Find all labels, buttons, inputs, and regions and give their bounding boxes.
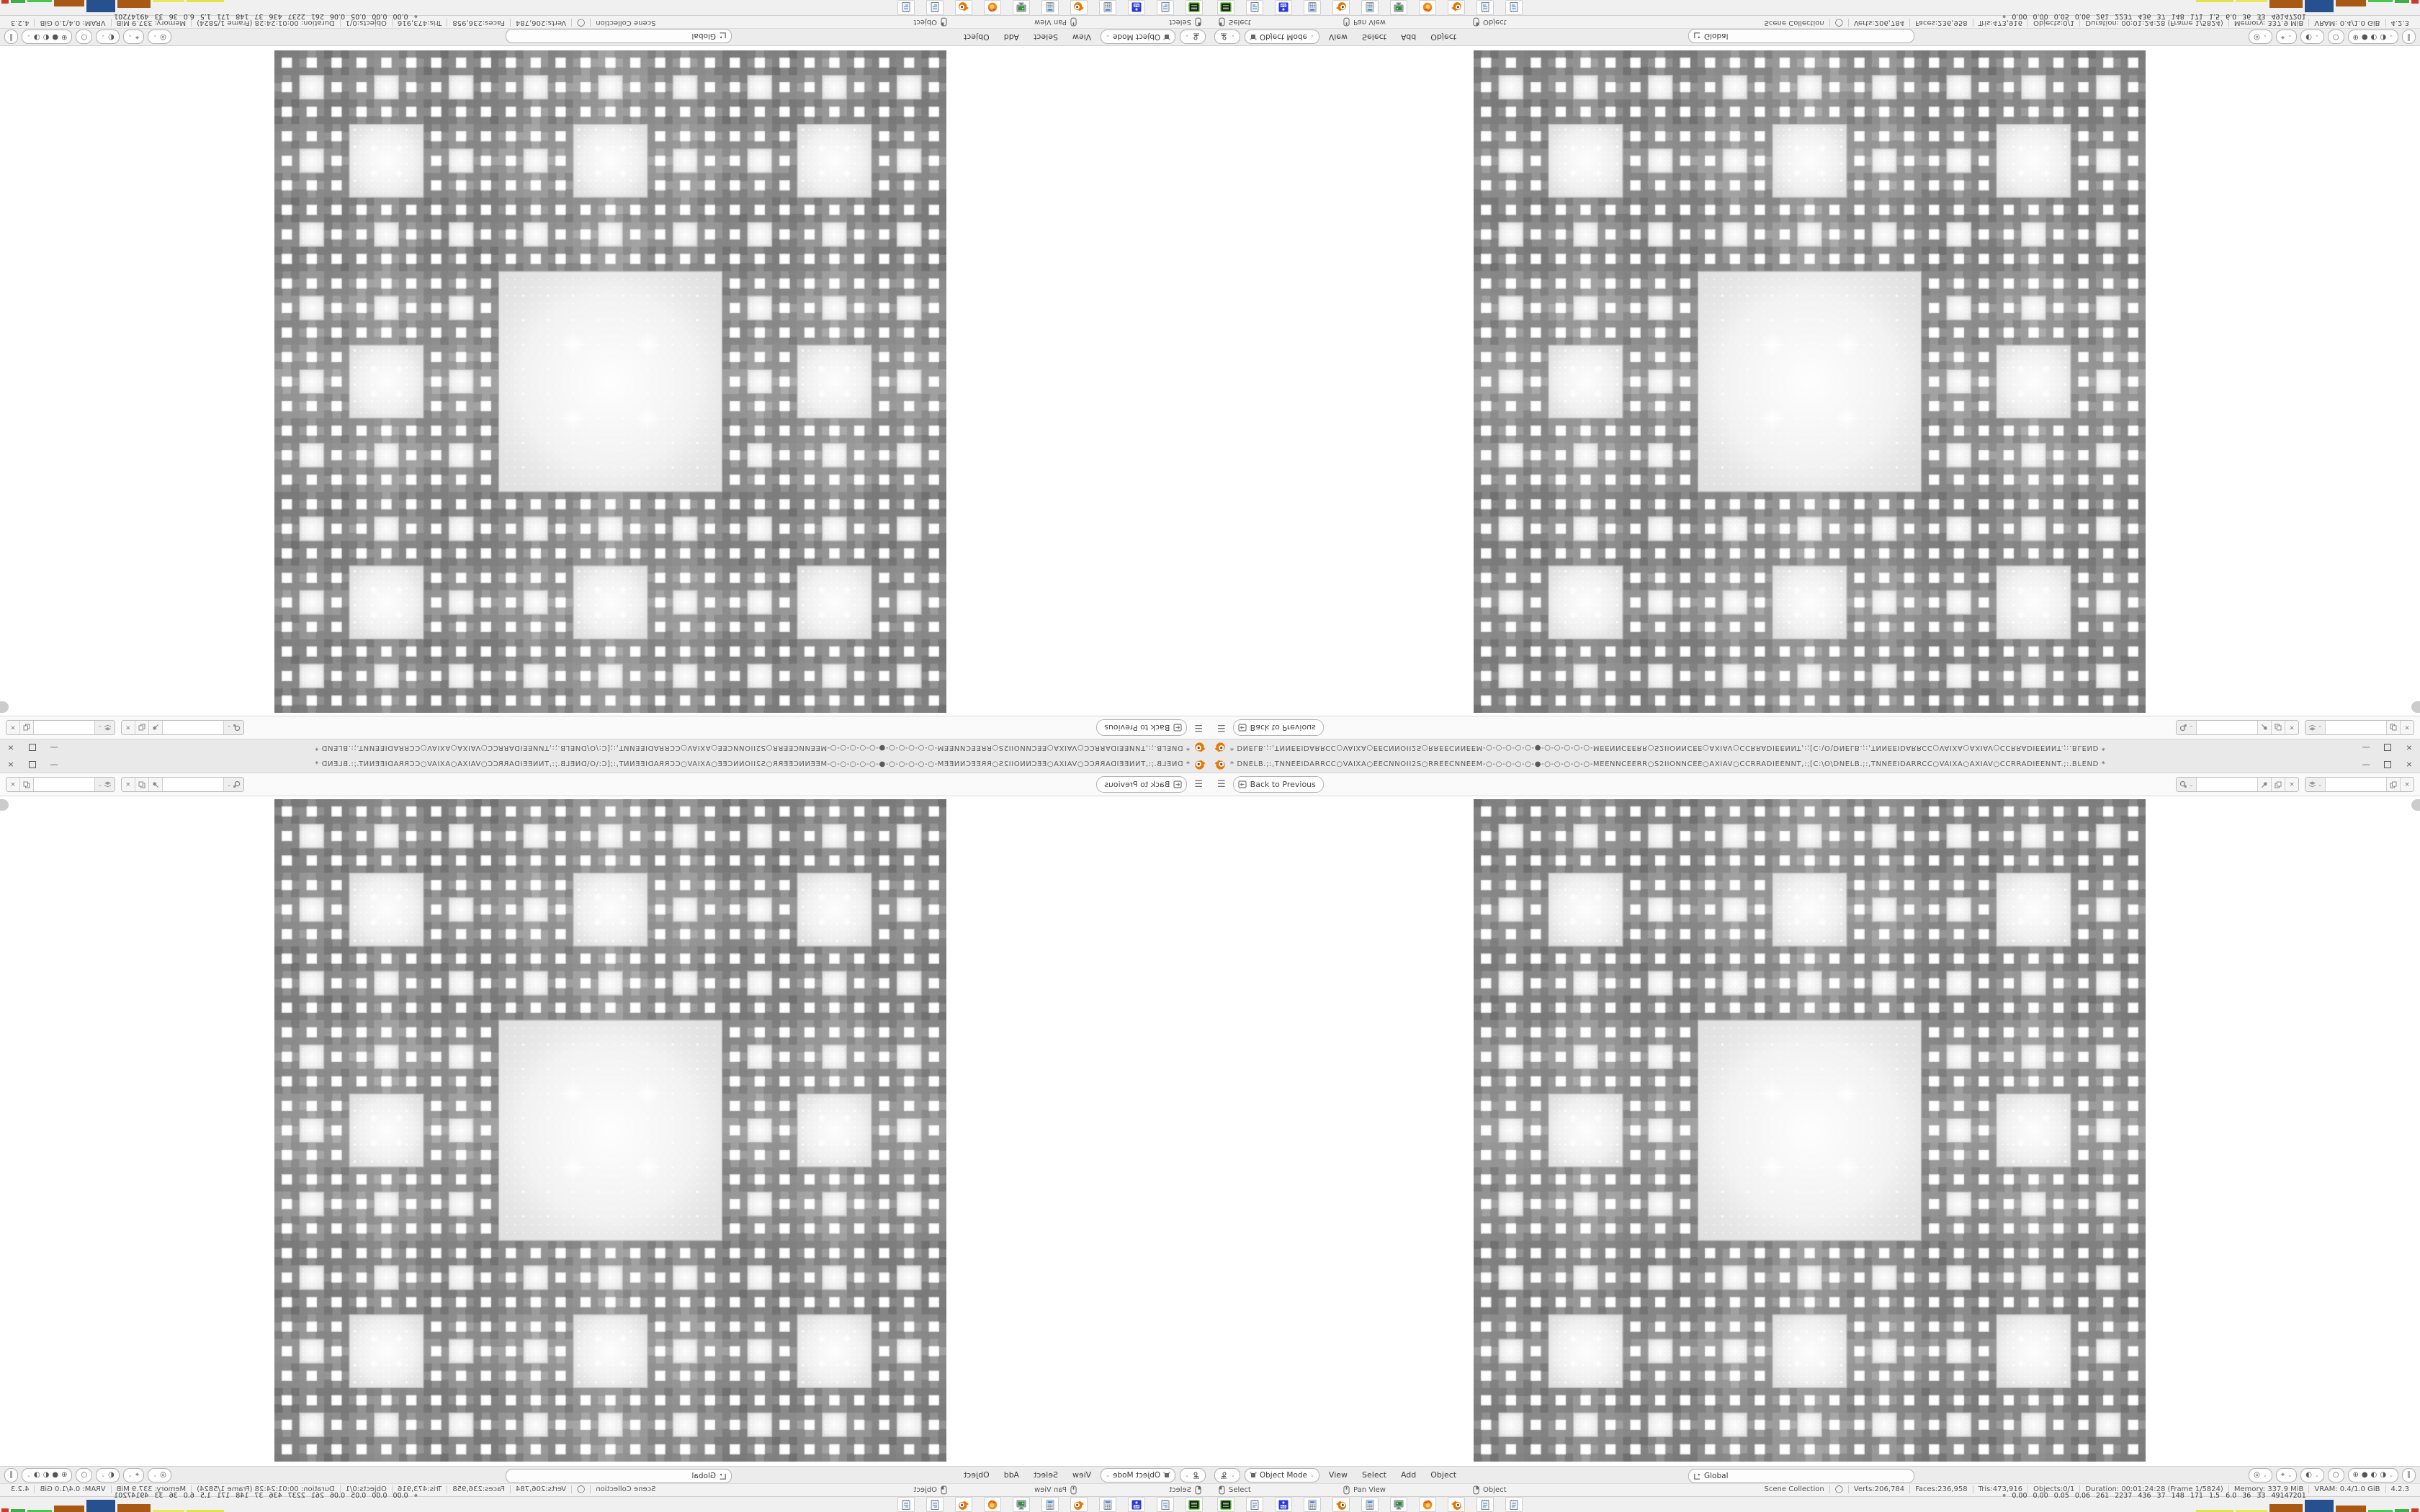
mode-dropdown[interactable]: Object Mode ⌄ <box>1245 30 1319 45</box>
chevron-down-icon: ⌄ <box>2263 1472 2267 1478</box>
menu-select[interactable]: Select <box>1028 1470 1063 1480</box>
transform-orientation-dropdown[interactable]: Global <box>506 1469 732 1483</box>
window-titlebar: * DNELB.;:,TNNEEIDARRCC○VAIXA○EECNNOII2S… <box>0 756 1210 773</box>
editor-type-selector[interactable]: ⌄ <box>1214 1468 1240 1482</box>
stat-faces: Faces:236,958 <box>1909 1485 1973 1493</box>
circle-icon: ○ <box>2333 33 2339 41</box>
maximize-button[interactable] <box>2377 756 2398 773</box>
profiler-bar <box>2368 0 2393 2</box>
right-mouse-button-icon <box>941 1485 947 1495</box>
taskbar-icon-firefox[interactable] <box>984 0 1001 15</box>
wireframe-shading-icon[interactable]: ⊕ <box>2353 1471 2359 1479</box>
maximize-icon <box>2384 761 2391 768</box>
header-end-handle[interactable]: ∥ <box>4 30 18 45</box>
blender-logo-icon <box>1194 742 1206 754</box>
material-shading-icon[interactable]: ◐ <box>2371 1471 2378 1479</box>
close-button[interactable]: × <box>0 756 22 773</box>
delete-scene-button[interactable]: × <box>122 721 135 734</box>
transform-orientation-dropdown[interactable]: Global <box>1688 1469 1914 1483</box>
taskbar-icon-blender[interactable] <box>955 1497 972 1512</box>
scene-icon-glyph <box>2179 724 2187 732</box>
new-scene-button[interactable] <box>2272 721 2285 734</box>
mode-label: Object Mode <box>1113 1471 1160 1480</box>
wireframe-shading-icon[interactable]: ⊕ <box>61 33 67 41</box>
chevron-down-icon: ⌄ <box>2287 35 2292 40</box>
scene-icon[interactable]: ⌄ <box>223 721 243 734</box>
taskbar-icon-notepad[interactable] <box>926 0 944 15</box>
window-titlebar: * DNELB.;:,TNNEEIDARRCC○VAIXA○EECNNOII2S… <box>1210 756 2420 773</box>
orientation-label: Global <box>692 32 717 40</box>
remove-view-layer-button[interactable]: × <box>2401 721 2414 734</box>
profiler-stats-text: ⌖ 0.00 0.00 0.05 0.06 261 2237 436 37 14… <box>114 12 418 20</box>
taskbar-icon-calculator[interactable] <box>1099 0 1116 15</box>
back-window-icon <box>1238 724 1247 732</box>
stat-faces: Faces:236,958 <box>447 1485 511 1493</box>
gizmo-icon: ◎ <box>2254 33 2260 41</box>
show-gizmo-toggle[interactable]: ◎ ⌄ <box>148 1468 171 1482</box>
pin-scene-button[interactable] <box>2258 721 2272 734</box>
view-layer-selector[interactable]: ⌄ × <box>2305 720 2414 735</box>
taskbar-icon-notepad[interactable] <box>1157 1497 1174 1512</box>
taskbar-icon-calculator[interactable] <box>1304 0 1321 15</box>
back-to-previous-label: Back to Previous <box>1250 723 1316 732</box>
header-end-handle[interactable]: ∥ <box>2402 1468 2416 1482</box>
stat-verts: Verts:206,784 <box>511 1485 572 1493</box>
hint-pan-view: Pan View <box>1034 17 1077 27</box>
chevron-down-icon: ⌄ <box>1310 35 1314 40</box>
gizmo-icon: ◎ <box>2254 1471 2260 1479</box>
chevron-down-icon: ⌄ <box>1106 35 1110 40</box>
profiler-stats-text: ⌖ 0.00 0.00 0.05 0.06 261 2237 436 37 14… <box>2002 12 2306 20</box>
taskbar-icon-vice-c64[interactable]: 64 <box>1128 0 1145 15</box>
scene-icon-glyph <box>233 724 241 732</box>
chevron-down-icon: ⌄ <box>1106 1472 1110 1478</box>
3d-viewport-editor-icon <box>1219 33 1228 42</box>
taskbar-icon-blender[interactable] <box>1448 0 1465 15</box>
hint-object: Object <box>1473 1485 1507 1495</box>
mode-dropdown[interactable]: Object Mode ⌄ <box>1101 1468 1175 1482</box>
header-end-handle[interactable]: ∥ <box>4 1468 18 1482</box>
show-overlays-toggle[interactable]: ⌖ ⌄ <box>2276 1468 2298 1482</box>
wireframe-shading-icon[interactable]: ⊕ <box>2353 33 2359 41</box>
profiler-bar-graph <box>2196 0 2419 13</box>
stat-faces: Faces:236,958 <box>1909 19 1973 27</box>
stat-verts: Verts:206,784 <box>511 19 572 27</box>
menu-hamburger-icon[interactable]: ☰ <box>1217 779 1226 790</box>
menu-object[interactable]: Object <box>959 1470 995 1480</box>
new-scene-button[interactable] <box>2272 778 2285 791</box>
menu-object[interactable]: Object <box>959 32 995 42</box>
new-view-layer-button[interactable] <box>2387 778 2401 791</box>
copy-icon <box>138 724 145 732</box>
pause-bars-icon: ∥ <box>9 1471 13 1479</box>
scene-selector[interactable]: ⌄ × <box>121 720 244 735</box>
menu-view[interactable]: View <box>1324 1470 1353 1480</box>
menger-sponge-render[interactable] <box>1474 50 2146 713</box>
layers-icon-glyph <box>104 724 112 732</box>
close-button[interactable]: × <box>2398 756 2420 773</box>
header-end-handle[interactable]: ∥ <box>2402 30 2416 45</box>
taskbar-icon-zip-drive[interactable] <box>1186 1497 1203 1512</box>
taskbar-icon-firefox[interactable] <box>1419 1497 1436 1512</box>
menu-object[interactable]: Object <box>1425 1470 1461 1480</box>
close-button[interactable]: × <box>0 739 22 757</box>
pause-bars-icon: ∥ <box>2407 1471 2411 1479</box>
taskbar-icon-notepad[interactable] <box>1476 1497 1494 1512</box>
overlays-icon: ⌖ <box>135 33 140 41</box>
window-title: * DNELB.;:,TNNEEIDARRCC○VAIXA○EECNNOII2S… <box>1230 744 2355 752</box>
layers-icon-glyph <box>104 780 112 788</box>
xray-toggle[interactable]: ◐ ⌄ <box>2300 30 2324 45</box>
shading-mode-group[interactable]: ⊕ ● ◐ ◑ ⌄ <box>22 30 72 45</box>
taskbar-icon-vice-c64[interactable]: 64 <box>1128 1497 1145 1512</box>
taskbar-icon-blender[interactable] <box>1332 1497 1350 1512</box>
show-overlays-toggle[interactable]: ⌖ ⌄ <box>123 30 145 45</box>
menu-hamburger-icon[interactable]: ☰ <box>1217 722 1226 733</box>
3d-viewport[interactable] <box>1210 46 2420 716</box>
back-window-icon <box>1238 780 1247 788</box>
minimize-button[interactable]: — <box>2355 756 2377 773</box>
stat-active-object-icon: ◯ <box>1829 1485 1848 1493</box>
scene-selector[interactable]: ⌄ × <box>2176 720 2299 735</box>
delete-scene-button[interactable]: × <box>122 778 135 791</box>
scene-icon[interactable]: ⌄ <box>223 778 243 791</box>
chevron-down-icon: ⌄ <box>128 1472 133 1478</box>
show-overlays-toggle[interactable]: ⌖ ⌄ <box>123 1468 145 1482</box>
taskbar-icon-calculator[interactable] <box>1099 1497 1116 1512</box>
taskbar-icon-notepad[interactable] <box>926 1497 944 1512</box>
view-layer-name-field[interactable] <box>33 778 94 791</box>
mode-dropdown[interactable]: Object Mode ⌄ <box>1101 30 1175 45</box>
profiler-bar-graph <box>2196 1499 2419 1512</box>
close-button[interactable]: × <box>2398 739 2420 757</box>
delete-scene-button[interactable]: × <box>2285 778 2298 791</box>
scene-name-field[interactable] <box>2197 778 2258 791</box>
editor-type-selector[interactable]: ⌄ <box>1180 30 1206 45</box>
menger-sponge-render[interactable] <box>1474 799 2146 1462</box>
window-title: * DNELB.;:,TNNEEIDARRCC○VAIXA○EECNNOII2S… <box>1230 760 2355 768</box>
menu-object[interactable]: Object <box>1425 32 1461 42</box>
copy-icon <box>2275 724 2282 732</box>
view-layer-selector[interactable]: ⌄ × <box>2305 777 2414 792</box>
pin-scene-button[interactable] <box>2258 778 2272 791</box>
hint-select-label: Select <box>1229 1486 1251 1494</box>
solid-shading-icon[interactable]: ● <box>52 1471 58 1479</box>
new-view-layer-button[interactable] <box>19 778 33 791</box>
rendered-shading-icon[interactable]: ◑ <box>34 33 40 41</box>
menu-select[interactable]: Select <box>1357 1470 1391 1480</box>
blender-topbar: ☰ Back to Previous ⌄ <box>0 773 1210 796</box>
profiler-bar-graph <box>1 1499 224 1512</box>
show-gizmo-toggle[interactable]: ◎ ⌄ <box>2249 1468 2272 1482</box>
editor-type-selector[interactable]: ⌄ <box>1180 1468 1206 1482</box>
back-to-previous-button[interactable]: Back to Previous <box>1233 776 1324 793</box>
taskbar-icon-notepad[interactable] <box>897 0 915 15</box>
delete-scene-button[interactable]: × <box>2285 721 2298 734</box>
taskbar-icon-notepad[interactable] <box>1157 0 1174 15</box>
menu-add[interactable]: Add <box>999 1470 1024 1480</box>
3d-viewport[interactable] <box>0 796 1210 1466</box>
scene-name-field[interactable] <box>162 778 223 791</box>
xray-toggle[interactable]: ◐ ⌄ <box>96 30 120 45</box>
menu-select[interactable]: Select <box>1028 32 1063 42</box>
viewport-header: ⌄ Object Mode ⌄ View Select Add Object <box>1210 1466 2420 1483</box>
taskbar-icon-notepad[interactable] <box>1246 0 1263 15</box>
shading-mode-group[interactable]: ⊕ ● ◐ ◑ ⌄ <box>2348 1468 2398 1482</box>
chevron-down-icon: ⌄ <box>2287 1472 2292 1478</box>
view-layer-selector[interactable]: ⌄ × <box>6 720 115 735</box>
scene-icon[interactable]: ⌄ <box>2177 721 2197 734</box>
view-layer-icon[interactable]: ⌄ <box>2305 778 2326 791</box>
scene-name-field[interactable] <box>162 721 223 734</box>
taskbar-icon-blender[interactable] <box>1448 1497 1465 1512</box>
chevron-down-icon: ⌄ <box>153 35 157 40</box>
hint-object-label: Object <box>913 18 937 26</box>
menu-add[interactable]: Add <box>1396 1470 1421 1480</box>
taskbar-icon-image-viewer[interactable] <box>1013 0 1030 15</box>
3d-viewport[interactable] <box>0 46 1210 716</box>
show-gizmo-toggle[interactable]: ◎ ⌄ <box>2249 30 2272 45</box>
global-orientation-icon <box>1693 32 1701 40</box>
chevron-down-icon: ⌄ <box>2389 1472 2393 1478</box>
maximize-button[interactable] <box>22 739 43 757</box>
menu-view[interactable]: View <box>1067 32 1096 42</box>
wireframe-shading-icon[interactable]: ⊕ <box>61 1471 67 1479</box>
shading-mode-group[interactable]: ⊕ ● ◐ ◑ ⌄ <box>2348 30 2398 45</box>
global-orientation-icon <box>719 1472 727 1480</box>
scene-icon[interactable]: ⌄ <box>2177 778 2197 791</box>
new-scene-button[interactable] <box>135 778 148 791</box>
copy-icon <box>23 724 30 732</box>
solid-shading-icon[interactable]: ● <box>2362 1471 2368 1479</box>
hint-object-label: Object <box>1483 18 1507 26</box>
left-mouse-button-icon <box>1219 17 1225 27</box>
viewport-header: ⌄ Object Mode ⌄ View Select Add Object <box>0 1466 1210 1483</box>
menu-select[interactable]: Select <box>1357 32 1391 42</box>
menger-sponge-render[interactable] <box>274 50 946 713</box>
taskbar-icon-calculator[interactable] <box>1041 1497 1059 1512</box>
profiler-bar <box>1 1508 9 1512</box>
back-to-previous-button[interactable]: Back to Previous <box>1096 719 1187 736</box>
viewport-corner-handle[interactable] <box>2411 799 2420 811</box>
taskbar-icon-vice-c64[interactable]: 64 <box>1275 1497 1292 1512</box>
taskbar-icon-notepad[interactable] <box>1505 1497 1523 1512</box>
show-overlays-toggle[interactable]: ⌖ ⌄ <box>2276 30 2298 45</box>
view-layer-name-field[interactable] <box>2326 721 2387 734</box>
shading-empty-toggle[interactable]: ○ <box>76 30 92 45</box>
taskbar-icon-firefox[interactable] <box>984 1497 1001 1512</box>
chevron-down-icon: ⌄ <box>27 1472 31 1478</box>
editor-type-selector[interactable]: ⌄ <box>1214 30 1240 45</box>
scene-name-field[interactable] <box>2197 721 2258 734</box>
remove-view-layer-button[interactable]: × <box>6 778 19 791</box>
stat-scene-collection: Scene Collection <box>591 1485 660 1493</box>
chevron-down-icon: ⌄ <box>2389 35 2393 40</box>
material-shading-icon[interactable]: ◐ <box>43 1471 50 1479</box>
chevron-down-icon: ⌄ <box>2318 782 2322 788</box>
hint-pan-view-label: Pan View <box>1034 1486 1067 1494</box>
profiler-bar <box>2269 0 2303 8</box>
stat-active-object-icon: ◯ <box>572 1485 591 1493</box>
taskbar-icon-zip-drive[interactable] <box>1217 1497 1234 1512</box>
back-window-icon <box>1173 780 1182 788</box>
taskbar-icon-zip-drive[interactable] <box>1186 0 1203 15</box>
taskbar-icon-calculator[interactable] <box>1304 1497 1321 1512</box>
new-view-layer-button[interactable] <box>2387 721 2401 734</box>
gizmo-icon: ◎ <box>160 1471 166 1479</box>
material-shading-icon[interactable]: ◐ <box>43 33 50 41</box>
global-orientation-icon <box>719 32 727 40</box>
menu-add[interactable]: Add <box>1396 32 1421 42</box>
copy-icon <box>2390 781 2397 788</box>
remove-view-layer-button[interactable]: × <box>2401 778 2414 791</box>
menu-hamburger-icon[interactable]: ☰ <box>1194 722 1203 733</box>
circle-icon: ○ <box>81 33 87 41</box>
profiler-bar <box>2411 0 2419 4</box>
pin-icon <box>152 724 159 732</box>
blender-topbar: ☰ Back to Previous ⌄ <box>1210 773 2420 796</box>
taskbar-icon-notepad[interactable] <box>897 1497 915 1512</box>
profiler-bar <box>2395 1509 2409 1512</box>
taskbar-icon-zip-drive[interactable] <box>1217 0 1234 15</box>
hint-select-label: Select <box>1229 18 1251 26</box>
view-layer-icon[interactable]: ⌄ <box>94 721 115 734</box>
orientation-label: Global <box>1704 32 1729 40</box>
hint-pan-view: Pan View <box>1343 1485 1386 1495</box>
menu-hamburger-icon[interactable]: ☰ <box>1194 779 1203 790</box>
profiler-bar <box>2336 0 2366 6</box>
pin-scene-button[interactable] <box>148 778 162 791</box>
taskbar-icon-calculator[interactable] <box>1361 0 1379 15</box>
hint-select: Select <box>1219 1485 1251 1495</box>
show-gizmo-toggle[interactable]: ◎ ⌄ <box>148 30 171 45</box>
mode-label: Object Mode <box>1260 33 1307 42</box>
stat-scene-collection: Scene Collection <box>591 19 660 27</box>
performance-overlay: ⌖ 0.00 0.00 0.05 0.06 261 2237 436 37 14… <box>2002 0 2420 20</box>
view-layer-icon[interactable]: ⌄ <box>94 778 115 791</box>
stat-verts: Verts:206,784 <box>1848 19 1909 27</box>
solid-shading-icon[interactable]: ● <box>52 33 58 41</box>
chevron-down-icon: ⌄ <box>227 725 231 731</box>
stat-faces: Faces:236,958 <box>447 19 511 27</box>
layers-icon-glyph <box>2308 780 2316 788</box>
xray-toggle[interactable]: ◐ ⌄ <box>2300 1468 2324 1482</box>
taskbar-icon-notepad[interactable] <box>1476 0 1494 15</box>
material-shading-icon[interactable]: ◐ <box>2371 33 2378 41</box>
rendered-shading-icon[interactable]: ◑ <box>34 1471 40 1479</box>
gizmo-icon: ◎ <box>160 33 166 41</box>
viewport-header: ⌄ Object Mode ⌄ View Select Add Object <box>0 29 1210 46</box>
orientation-label: Global <box>692 1472 717 1480</box>
3d-viewport[interactable] <box>1210 796 2420 1466</box>
profiler-bar <box>86 0 115 12</box>
shading-mode-group[interactable]: ⊕ ● ◐ ◑ ⌄ <box>22 1468 72 1482</box>
viewport-corner-handle[interactable] <box>2411 701 2420 713</box>
3d-viewport-editor-icon <box>1219 1471 1228 1480</box>
minimize-button[interactable]: — <box>2355 739 2377 757</box>
taskbar-icon-notepad[interactable] <box>1246 1497 1263 1512</box>
chevron-down-icon: ⌄ <box>2318 725 2322 731</box>
stat-active-object-icon: ◯ <box>572 19 591 27</box>
circle-icon: ○ <box>2333 1471 2339 1479</box>
taskbar-icon-blender[interactable] <box>1332 0 1350 15</box>
view-layer-icon[interactable]: ⌄ <box>2305 721 2326 734</box>
transform-orientation-dropdown[interactable]: Global <box>1688 29 1914 43</box>
view-layer-selector[interactable]: ⌄ × <box>6 777 115 792</box>
overlays-icon: ⌖ <box>2281 33 2285 41</box>
pin-scene-button[interactable] <box>148 721 162 734</box>
rendered-shading-icon[interactable]: ◑ <box>2380 1471 2386 1479</box>
viewport-corner-handle[interactable] <box>0 701 9 713</box>
taskbar-icon-image-viewer[interactable] <box>1390 0 1407 15</box>
blender-topbar: ☰ Back to Previous ⌄ <box>1210 716 2420 739</box>
menu-add[interactable]: Add <box>999 32 1024 42</box>
chevron-down-icon: ⌄ <box>101 1472 105 1478</box>
minimize-button[interactable]: — <box>43 756 65 773</box>
shading-empty-toggle[interactable]: ○ <box>76 1468 92 1482</box>
maximize-button[interactable] <box>22 756 43 773</box>
taskbar-icon-image-viewer[interactable] <box>1390 1497 1407 1512</box>
rendered-shading-icon[interactable]: ◑ <box>2380 33 2386 41</box>
blender-window: * DNELB.;:,TNNEEIDARRCC○VAIXA○EECNNOII2S… <box>0 756 1210 1512</box>
taskbar-icon-blender[interactable] <box>1070 1497 1088 1512</box>
menger-sponge-render[interactable] <box>274 799 946 1462</box>
taskbar-icon-blender[interactable] <box>955 0 972 15</box>
taskbar-icon-image-viewer[interactable] <box>1013 1497 1030 1512</box>
solid-shading-icon[interactable]: ● <box>2362 33 2368 41</box>
taskbar-icon-firefox[interactable] <box>1419 0 1436 15</box>
shading-empty-toggle[interactable]: ○ <box>2328 1468 2344 1482</box>
taskbar-icon-calculator[interactable] <box>1041 0 1059 15</box>
transform-orientation-dropdown[interactable]: Global <box>506 29 732 43</box>
taskbar-icon-blender[interactable] <box>1070 0 1088 15</box>
back-to-previous-button[interactable]: Back to Previous <box>1096 776 1187 793</box>
mode-dropdown[interactable]: Object Mode ⌄ <box>1245 1468 1319 1482</box>
stat-verts: Verts:206,784 <box>1848 1485 1909 1493</box>
remove-view-layer-button[interactable]: × <box>6 721 19 734</box>
chevron-down-icon: ⌄ <box>98 725 102 731</box>
profiler-bar <box>11 1509 25 1512</box>
back-to-previous-button[interactable]: Back to Previous <box>1233 719 1324 736</box>
new-view-layer-button[interactable] <box>19 721 33 734</box>
shading-empty-toggle[interactable]: ○ <box>2328 30 2344 45</box>
maximize-icon <box>29 744 36 752</box>
xray-toggle[interactable]: ◐ ⌄ <box>96 1468 120 1482</box>
maximize-button[interactable] <box>2377 739 2398 757</box>
scene-selector[interactable]: ⌄ × <box>121 777 244 792</box>
menu-view[interactable]: View <box>1067 1470 1096 1480</box>
right-mouse-button-icon <box>1473 17 1479 27</box>
view-layer-name-field[interactable] <box>33 721 94 734</box>
scene-selector[interactable]: ⌄ × <box>2176 777 2299 792</box>
svg-text:64: 64 <box>1281 1505 1286 1509</box>
xray-icon: ◐ <box>2305 1471 2312 1479</box>
taskbar-icon-notepad[interactable] <box>1505 0 1523 15</box>
blender-window: * DNELB.;:,TNNEEIDARRCC○VAIXA○EECNNOII2S… <box>0 0 1210 756</box>
3d-viewport-editor-icon <box>1192 1471 1201 1480</box>
taskbar-icon-calculator[interactable] <box>1361 1497 1379 1512</box>
new-scene-button[interactable] <box>135 721 148 734</box>
left-mouse-button-icon <box>1195 1485 1201 1495</box>
view-layer-name-field[interactable] <box>2326 778 2387 791</box>
viewport-corner-handle[interactable] <box>0 799 9 811</box>
middle-mouse-button-icon <box>1070 1485 1077 1495</box>
minimize-button[interactable]: — <box>43 739 65 757</box>
menu-view[interactable]: View <box>1324 32 1353 42</box>
taskbar-icon-vice-c64[interactable]: 64 <box>1275 0 1292 15</box>
window-titlebar: * DNELB.;:,TNNEEIDARRCC○VAIXA○EECNNOII2S… <box>1210 739 2420 756</box>
copy-icon <box>138 781 145 788</box>
